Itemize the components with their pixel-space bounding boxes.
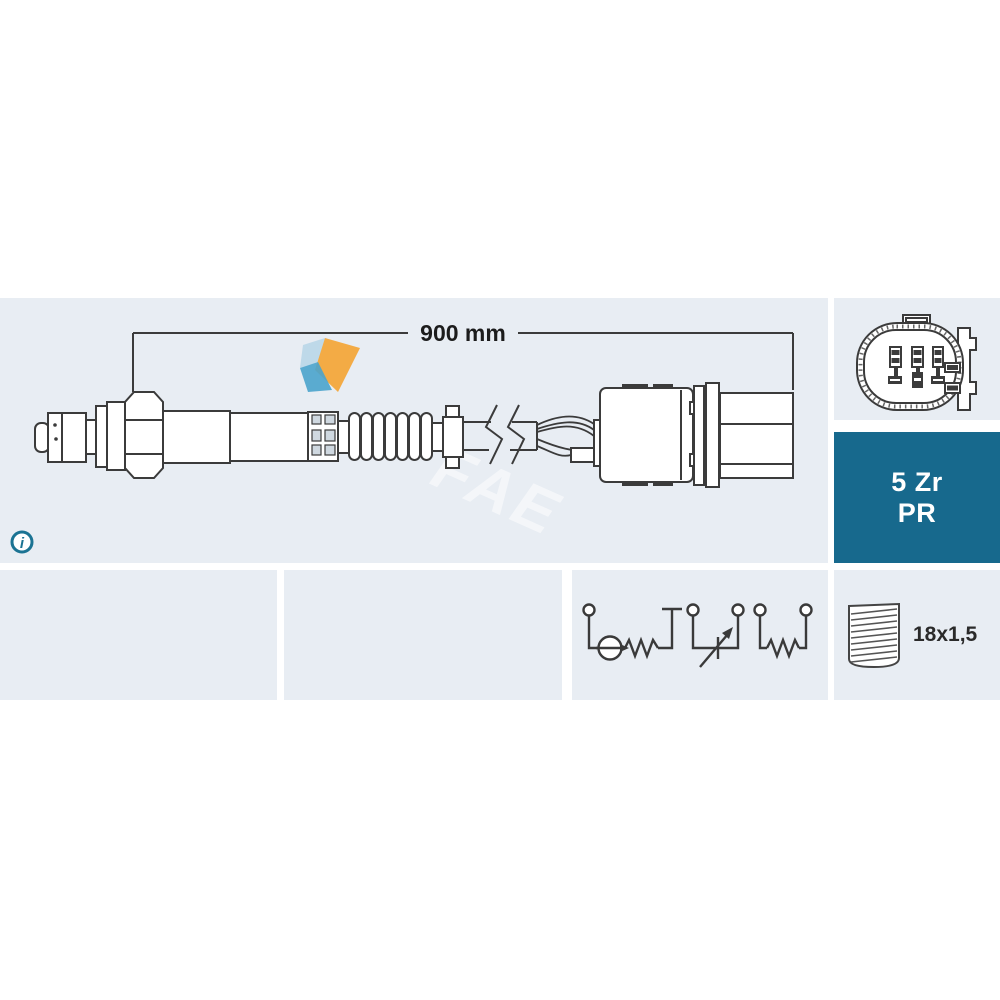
sensor-tip [35,423,49,452]
hex-nut [125,392,163,478]
sensor-diagram-panel: FAE 900 mm [0,298,828,563]
empty-spec-cell-2 [284,570,562,700]
connector-face-icon [834,298,1000,420]
bellows [349,413,432,460]
cable-clamp [443,406,463,468]
dimension-label: 900 mm [420,320,506,346]
thread-size-label: 18x1,5 [913,623,977,647]
wiring-schematic-icon [572,570,828,700]
connector-face-panel [834,298,1000,420]
sensor-code-line1: 5 Zr [891,467,943,498]
info-icon: i [12,532,32,552]
connector-side [594,383,793,487]
crimp-sleeve [308,412,338,461]
sensor-code-line2: PR [898,498,937,529]
wiring-schematic-panel [572,570,828,700]
sensor-code-box: 5 Zr PR [834,432,1000,563]
empty-spec-cell-1 [0,570,277,700]
protective-tube [163,411,230,463]
thread-spec-panel: 18x1,5 [834,570,1000,700]
thread-icon [847,602,901,668]
dimension-line: 900 mm [133,320,793,392]
lambda-sensor-drawing [35,383,793,487]
product-image: FAE 900 mm [0,0,1000,1000]
